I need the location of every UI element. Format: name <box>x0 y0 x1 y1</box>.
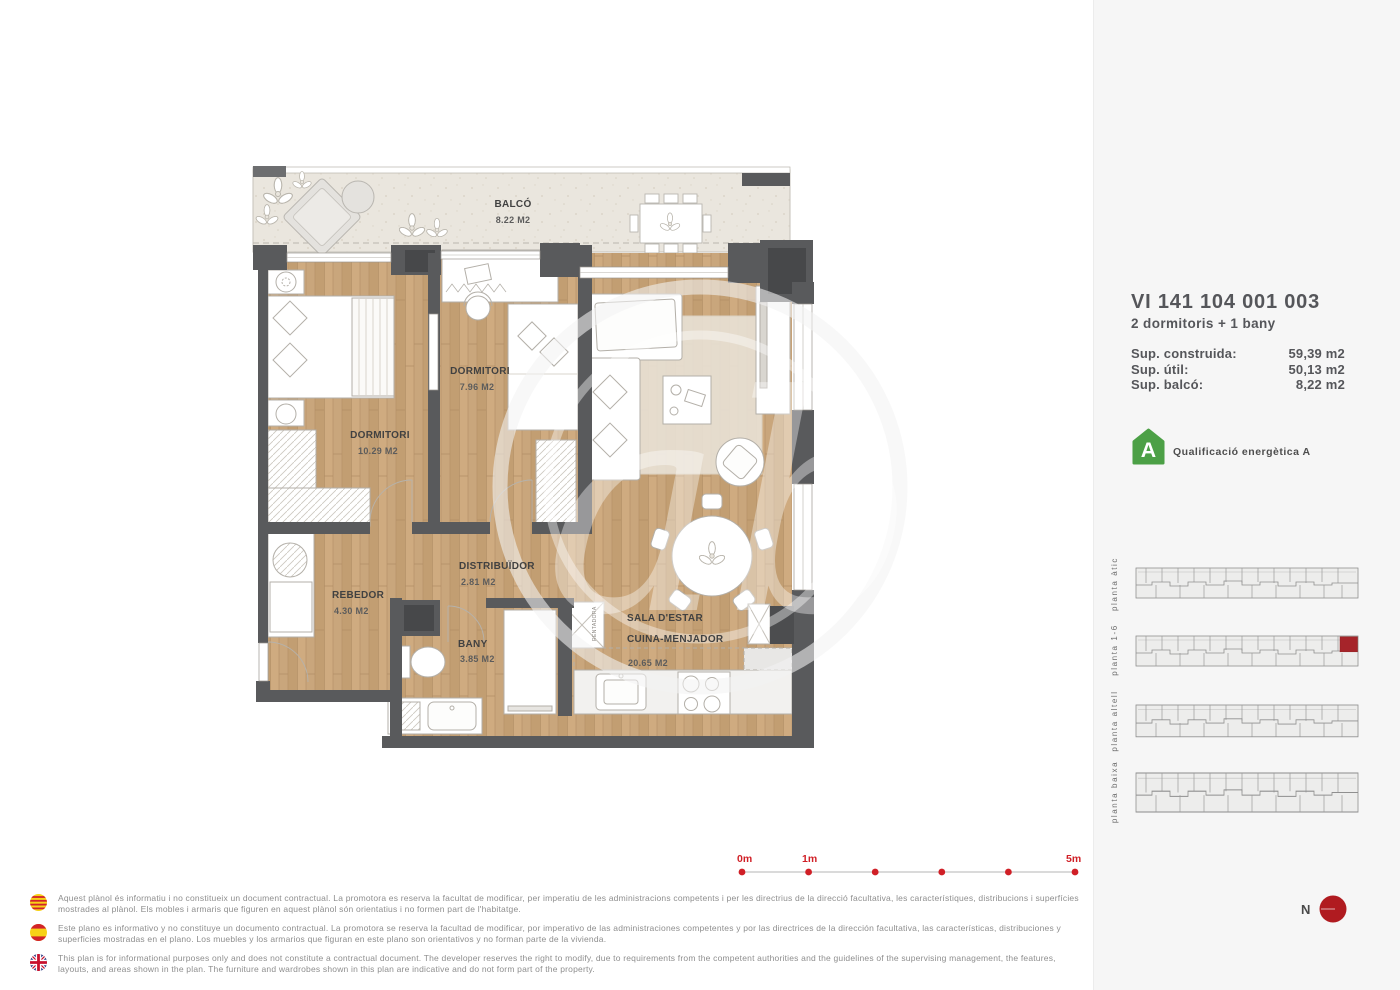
unit-layout: 2 dormitoris + 1 bany <box>1131 316 1276 331</box>
svg-text:ab: ab <box>545 332 916 681</box>
surface-value: 50,13 m2 <box>1288 362 1345 378</box>
room-area-distribuidor: 2.81 M2 <box>461 577 496 587</box>
disclaimer-text: Aquest plànol és informatiu i no constit… <box>58 893 1088 915</box>
room-label-rebedor: REBEDOR <box>332 590 385 601</box>
disclaimer-spanish: Este plano es informativo y no constituy… <box>30 923 1088 945</box>
scale-0m: 0m <box>737 853 752 865</box>
room-area-dormitori-2: 7.96 M2 <box>460 382 495 392</box>
surface-value: 59,39 m2 <box>1288 346 1345 362</box>
room-label-dormitori-2: DORMITORI <box>450 366 510 377</box>
surface-label: Sup. balcó: <box>1131 377 1203 393</box>
disclaimer-catalan: Aquest plànol és informatiu i no constit… <box>30 893 1088 915</box>
surface-row: Sup. construida: 59,39 m2 <box>1131 346 1345 362</box>
apartment-plan: ab BALCÓ 8.22 M2 DORMITORI 10.29 M2 DORM… <box>253 166 916 748</box>
lounge-chair <box>282 177 361 256</box>
room-label-sala-2: CUINA-MENJADOR <box>627 634 724 645</box>
room-area-rebedor: 4.30 M2 <box>334 606 369 616</box>
room-area-dormitori-1: 10.29 M2 <box>358 446 398 456</box>
outdoor-dining-set <box>630 194 711 253</box>
scale-5m: 5m <box>1066 853 1081 865</box>
scale-1m: 1m <box>802 853 817 865</box>
surface-row: Sup. balcó: 8,22 m2 <box>1131 377 1345 393</box>
energy-rating-icon: A <box>1132 428 1165 470</box>
disclaimer-text: This plan is for informational purposes … <box>58 953 1088 975</box>
developer-watermark: ab <box>500 287 916 687</box>
room-label-dormitori-1: DORMITORI <box>350 430 410 441</box>
surface-label: Sup. útil: <box>1131 362 1189 378</box>
floorplan-sheet: VI 141 104 001 003 2 dormitoris + 1 bany… <box>0 0 1400 990</box>
room-label-bany: BANY <box>458 639 488 650</box>
room-label-sala-1: SALA D'ESTAR <box>627 613 703 624</box>
unit-code: VI 141 104 001 003 <box>1131 291 1320 314</box>
surface-table: Sup. construida: 59,39 m2 Sup. útil: 50,… <box>1131 346 1345 393</box>
info-sidebar: VI 141 104 001 003 2 dormitoris + 1 bany… <box>1093 0 1400 990</box>
disclaimer-text: Este plano es informativo y no constituy… <box>58 923 1088 945</box>
surface-value: 8,22 m2 <box>1296 377 1345 393</box>
energy-rating-label: Qualificació energètica A <box>1173 446 1311 458</box>
scale-bar: 0m 1m 5m <box>737 853 1081 875</box>
room-label-distribuidor: DISTRIBUÏDOR <box>459 559 535 572</box>
room-label-balco: BALCÓ <box>494 197 531 210</box>
catalonia-flag-icon <box>30 894 47 911</box>
washer-label: RENTADORA <box>592 606 598 641</box>
uk-flag-icon <box>30 954 47 971</box>
energy-letter: A <box>1141 438 1156 462</box>
walls <box>253 240 814 748</box>
side-table <box>342 181 374 213</box>
room-area-balco: 8.22 M2 <box>496 215 531 225</box>
room-area-sala: 20.65 M2 <box>628 658 668 668</box>
spain-flag-icon <box>30 924 47 941</box>
surface-row: Sup. útil: 50,13 m2 <box>1131 362 1345 378</box>
room-area-bany: 3.85 M2 <box>460 654 495 664</box>
surface-label: Sup. construida: <box>1131 346 1237 362</box>
disclaimer-english: This plan is for informational purposes … <box>30 953 1088 975</box>
